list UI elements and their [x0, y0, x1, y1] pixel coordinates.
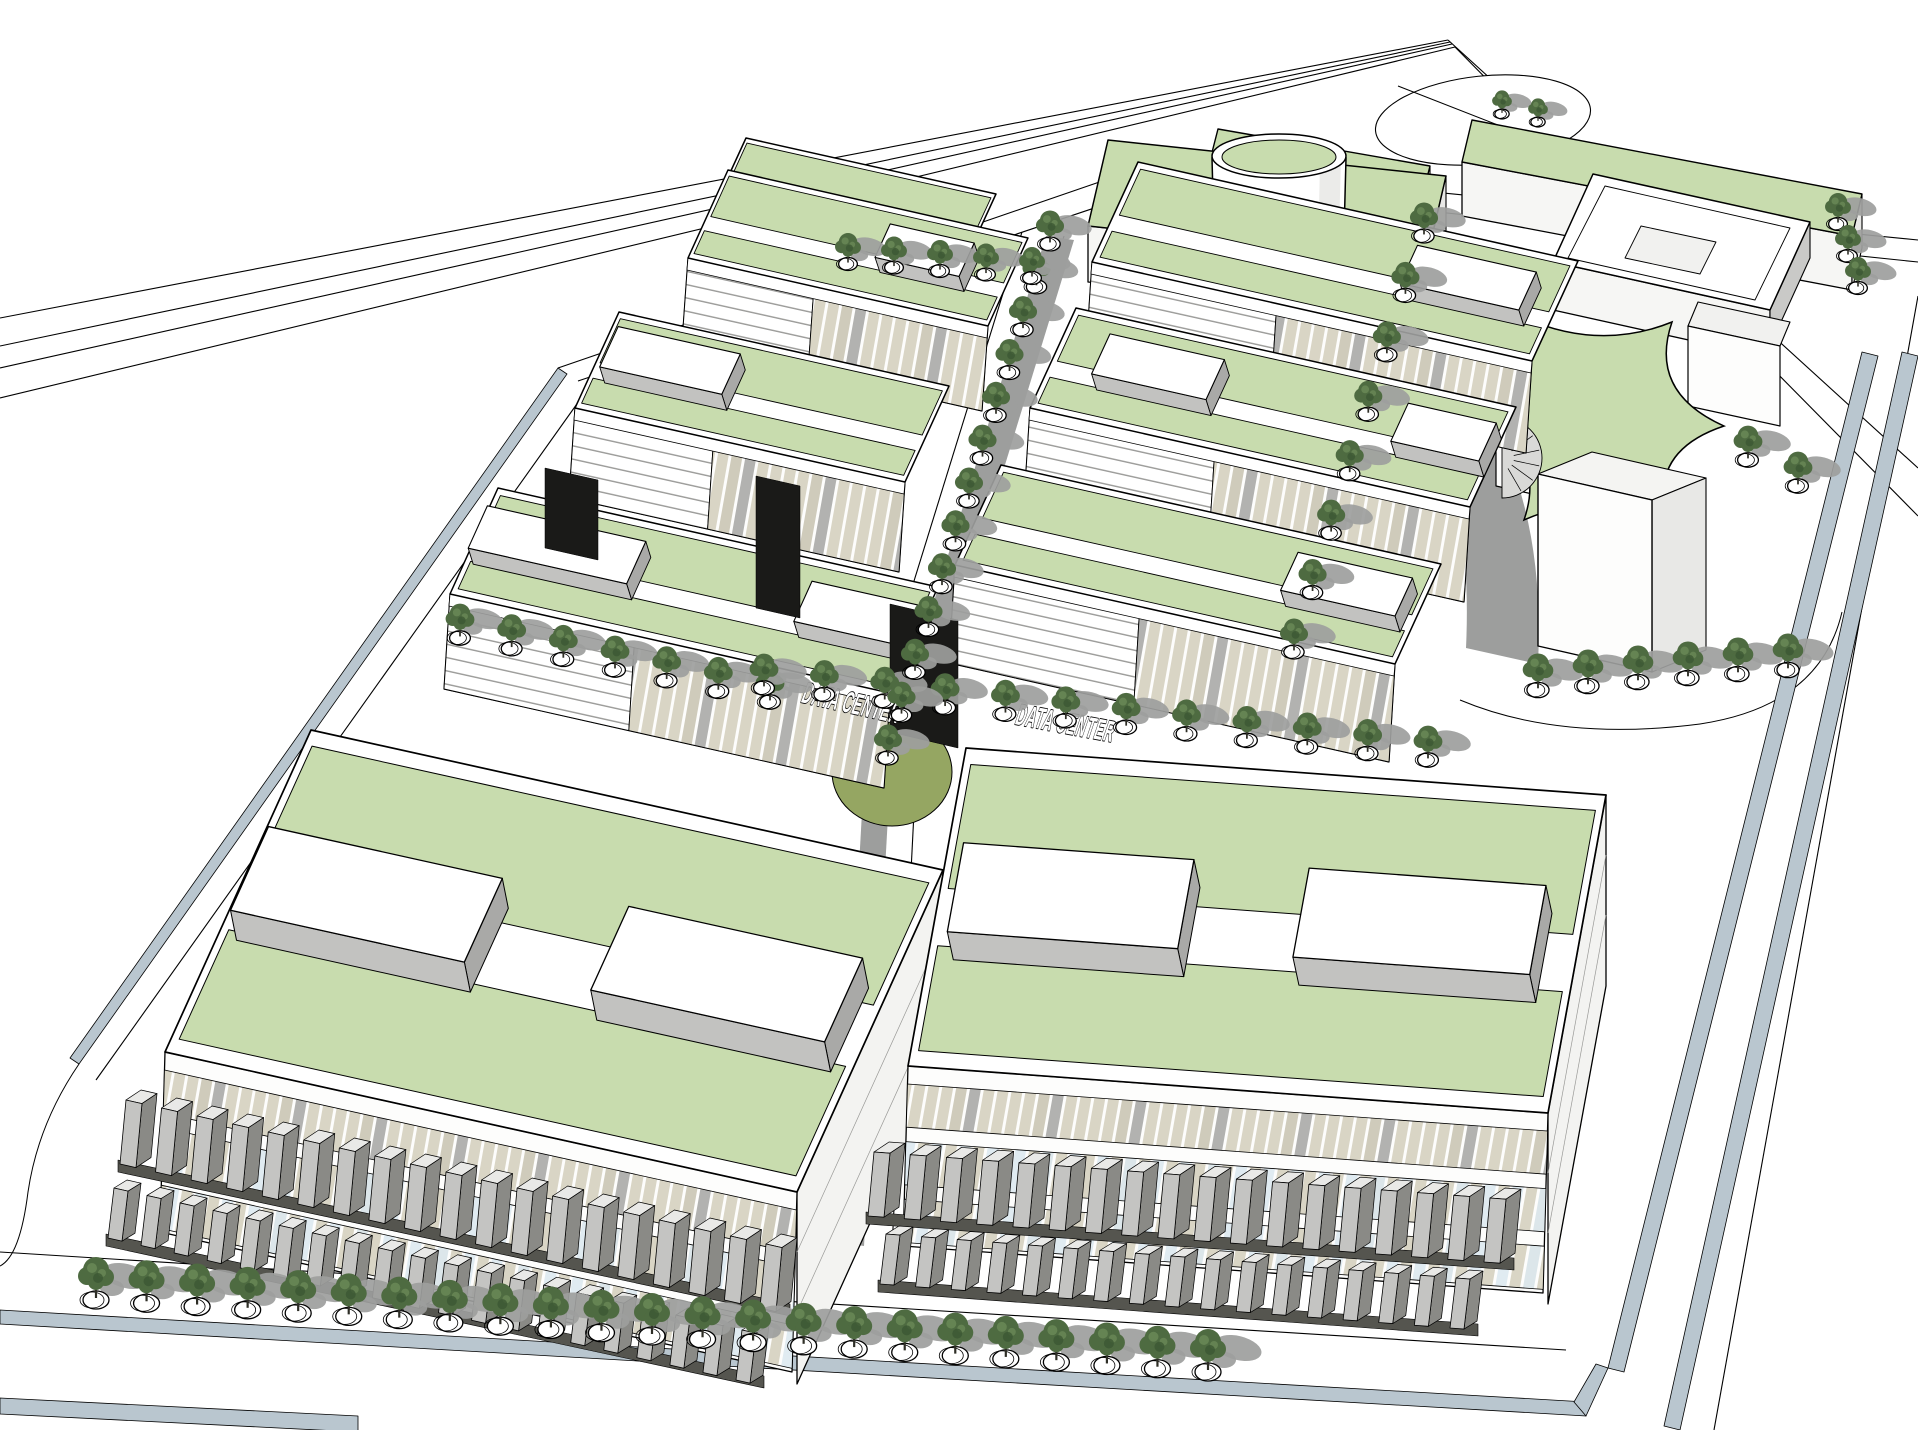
tree-foliage-dark	[1310, 572, 1318, 580]
tree-foliage-dark	[509, 627, 517, 635]
tree-foliage-dark	[822, 673, 830, 681]
tree-foliage-light	[1306, 564, 1314, 572]
tree-foliage-light	[744, 1306, 754, 1316]
tree-foliage-dark	[1403, 274, 1411, 282]
tree-foliage-dark	[649, 1309, 659, 1319]
datacenter-b-penthouse-top	[1293, 868, 1546, 974]
tree-foliage-dark	[1846, 237, 1853, 244]
tree	[1773, 633, 1836, 677]
corner-sw-curve	[0, 1064, 79, 1266]
tree	[1835, 225, 1888, 262]
tree-foliage-light	[1016, 301, 1024, 309]
tree-foliage-dark	[1124, 706, 1132, 714]
tree-foliage-dark	[980, 437, 988, 445]
tree-foliage-light	[1043, 215, 1051, 223]
tree-foliage-dark	[953, 523, 961, 531]
tree-foliage-dark	[1536, 107, 1542, 113]
tree-foliage-dark	[1003, 693, 1011, 701]
tree-foliage-light	[1417, 207, 1425, 215]
tree-foliage-light	[1287, 623, 1295, 631]
tree-foliage-light	[1852, 261, 1859, 268]
tree-foliage-light	[694, 1302, 704, 1312]
tree-foliage-dark	[967, 480, 975, 488]
tree-foliage-dark	[295, 1286, 305, 1296]
tree-foliage-light	[1098, 1328, 1108, 1338]
corner-join-strip	[1574, 1364, 1608, 1416]
tree-foliage-light	[1398, 267, 1406, 275]
tree-foliage-light	[1026, 251, 1033, 258]
tree-foliage-light	[1421, 730, 1429, 738]
tree-foliage-dark	[1007, 351, 1015, 359]
tree-foliage-dark	[1422, 215, 1430, 223]
tree-foliage-light	[390, 1283, 400, 1293]
tree-foliage-dark	[1365, 732, 1373, 740]
tree-foliage-light	[894, 686, 902, 694]
tree-foliage-light	[1002, 344, 1010, 352]
tree	[1845, 257, 1898, 294]
tree-foliage-light	[1842, 229, 1849, 236]
tree-foliage-dark	[1366, 393, 1374, 401]
tree-foliage-dark	[1154, 1342, 1164, 1352]
tree-foliage-light	[188, 1270, 198, 1280]
tree-foliage-dark	[1292, 631, 1300, 639]
tree-foliage-light	[138, 1266, 148, 1276]
tree-foliage-light	[1199, 1335, 1209, 1345]
tree-foliage-dark	[1796, 464, 1804, 472]
plaza-tower-sw-side	[1652, 478, 1706, 672]
cylinder-green-top	[1222, 140, 1336, 174]
south-road-strip-2	[0, 1398, 358, 1430]
tree-foliage-light	[1059, 691, 1067, 699]
tree-foliage-dark	[1205, 1345, 1215, 1355]
tree-foliage-light	[998, 685, 1006, 693]
tree-foliage-dark	[1347, 453, 1355, 461]
tree-foliage-dark	[1635, 659, 1644, 668]
tree-foliage-dark	[902, 1325, 912, 1335]
tree-foliage-dark	[346, 1289, 356, 1299]
tree-foliage-dark	[938, 252, 945, 259]
canyon-left-2	[756, 476, 800, 618]
tree-foliage-dark	[1104, 1338, 1114, 1348]
datacenter-b-penthouse-top	[947, 843, 1194, 949]
tree-foliage-light	[556, 630, 564, 638]
tree-foliage-light	[608, 640, 616, 648]
tree-foliage-light	[1300, 717, 1308, 725]
tree-foliage-dark	[1585, 663, 1594, 672]
tree-foliage-light	[989, 386, 997, 394]
tree-foliage-light	[340, 1279, 350, 1289]
tree-foliage-dark	[882, 679, 890, 687]
tree-foliage-dark	[447, 1296, 457, 1306]
tree-foliage-light	[1119, 698, 1127, 706]
tree-foliage-dark	[1785, 647, 1794, 656]
tree-foliage-light	[1343, 445, 1351, 453]
tree	[1190, 1329, 1264, 1381]
tree-foliage-light	[1741, 430, 1749, 438]
tree-foliage-dark	[801, 1319, 811, 1329]
tree-foliage-light	[888, 241, 895, 248]
tree-foliage-dark	[851, 1322, 861, 1332]
tree-foliage-light	[975, 429, 983, 437]
canyon-left-1	[545, 468, 598, 560]
tree-foliage-light	[921, 601, 929, 609]
tree-foliage-dark	[952, 1329, 962, 1339]
tree-foliage-light	[896, 1315, 906, 1325]
tree-foliage-light	[87, 1263, 97, 1273]
tree-foliage-light	[938, 678, 946, 686]
tree-foliage-light	[1240, 711, 1248, 719]
tree-foliage-light	[1680, 647, 1689, 656]
tree-foliage-light	[1324, 504, 1332, 512]
tree-foliage-dark	[194, 1280, 204, 1290]
tree-foliage-light	[1361, 385, 1369, 393]
tree-foliage-dark	[1500, 99, 1506, 105]
tree-foliage-light	[1148, 1332, 1158, 1342]
tree-foliage-light	[1497, 94, 1503, 100]
tree-foliage-dark	[497, 1299, 507, 1309]
tree	[1414, 726, 1473, 768]
tree-foliage-dark	[886, 737, 894, 745]
tree-foliage-dark	[245, 1283, 255, 1293]
tree-foliage-dark	[1305, 725, 1313, 733]
tree-foliage-light	[881, 729, 889, 737]
tree-foliage-light	[997, 1322, 1007, 1332]
tree-foliage-light	[908, 643, 916, 651]
tree-foliage-dark	[1385, 334, 1393, 342]
tree-foliage-light	[1791, 456, 1799, 464]
tree-foliage-dark	[1003, 1332, 1013, 1342]
site-plan-rendering: DATA CENTERDATA CENTER	[0, 0, 1918, 1430]
tree-foliage-dark	[1030, 259, 1037, 266]
tree-foliage-light	[795, 1309, 805, 1319]
tree-foliage-dark	[940, 566, 948, 574]
tree-foliage-dark	[458, 616, 466, 624]
tree-foliage-dark	[1685, 655, 1694, 664]
tree-foliage-dark	[846, 245, 853, 252]
plaza-tower-sw	[1538, 474, 1652, 672]
tree	[1734, 426, 1793, 468]
tree-foliage-light	[542, 1292, 552, 1302]
tree-foliage-dark	[899, 694, 907, 702]
tree-foliage-dark	[1329, 512, 1337, 520]
tree-foliage-dark	[664, 659, 672, 667]
tree-foliage-dark	[700, 1312, 710, 1322]
tree-foliage-light	[934, 244, 941, 251]
tree-foliage-dark	[984, 255, 991, 262]
tree-foliage-dark	[750, 1316, 760, 1326]
tree-foliage-light	[1179, 704, 1187, 712]
tree-foliage-light	[239, 1273, 249, 1283]
tree-foliage-light	[643, 1299, 653, 1309]
tree-foliage-light	[1580, 655, 1589, 664]
tree-foliage-dark	[548, 1302, 558, 1312]
tree-foliage-light	[711, 662, 719, 670]
tree-foliage-light	[1360, 724, 1368, 732]
tree-foliage-dark	[1836, 205, 1843, 212]
tree-foliage-dark	[994, 394, 1002, 402]
tree-foliage-light	[659, 651, 667, 659]
tree-foliage-light	[845, 1312, 855, 1322]
tree-foliage-light	[935, 558, 943, 566]
3d-model-viewport: DATA CENTERDATA CENTER	[0, 0, 1918, 1430]
tree-foliage-light	[946, 1319, 956, 1329]
tree-foliage-dark	[1245, 719, 1253, 727]
tree-foliage-dark	[396, 1293, 406, 1303]
tree-foliage-light	[757, 658, 765, 666]
tree-foliage-light	[1533, 102, 1539, 108]
tree-foliage-light	[441, 1286, 451, 1296]
tree-foliage-dark	[93, 1273, 103, 1283]
tree-foliage-dark	[892, 248, 899, 255]
tree-foliage-dark	[716, 670, 724, 678]
tree-foliage-dark	[762, 666, 770, 674]
tree-foliage-light	[948, 515, 956, 523]
tree-foliage-dark	[598, 1306, 608, 1316]
tree-foliage-dark	[561, 638, 569, 646]
tree-foliage-light	[1530, 659, 1539, 668]
tree-foliage-dark	[1184, 712, 1192, 720]
tree-foliage-light	[491, 1289, 501, 1299]
tree-foliage-light	[1832, 197, 1839, 204]
tree-foliage-light	[962, 472, 970, 480]
tree-foliage-dark	[926, 608, 934, 616]
tree-foliage-light	[878, 671, 886, 679]
tree-foliage-light	[1630, 651, 1639, 660]
tree-foliage-dark	[1021, 309, 1029, 317]
tree-foliage-dark	[1735, 651, 1744, 660]
tree-foliage-dark	[913, 651, 921, 659]
tree-foliage-light	[1730, 643, 1739, 652]
tree-foliage-light	[289, 1276, 299, 1286]
tree-foliage-dark	[1535, 667, 1544, 676]
tree-foliage-light	[504, 619, 512, 627]
tree-foliage-light	[592, 1296, 602, 1306]
tree-foliage-dark	[1048, 223, 1056, 231]
tree-foliage-light	[1047, 1325, 1057, 1335]
tree-foliage-dark	[1053, 1335, 1063, 1345]
tree-foliage-dark	[1426, 738, 1434, 746]
tree-foliage-light	[1380, 326, 1388, 334]
tree-foliage-dark	[144, 1276, 154, 1286]
tree-foliage-light	[1780, 639, 1789, 648]
trees-complex-east	[1734, 426, 1843, 494]
scene-layers: DATA CENTERDATA CENTER	[0, 40, 1918, 1430]
tree-foliage-dark	[613, 648, 621, 656]
tree-foliage-dark	[1746, 438, 1754, 446]
tree-foliage-light	[453, 608, 461, 616]
tree-foliage-dark	[943, 686, 951, 694]
tree-foliage-light	[980, 248, 987, 255]
tree-foliage-light	[817, 665, 825, 673]
tree-foliage-light	[842, 237, 849, 244]
tree-foliage-dark	[1856, 269, 1863, 276]
tree-foliage-dark	[1063, 699, 1071, 707]
